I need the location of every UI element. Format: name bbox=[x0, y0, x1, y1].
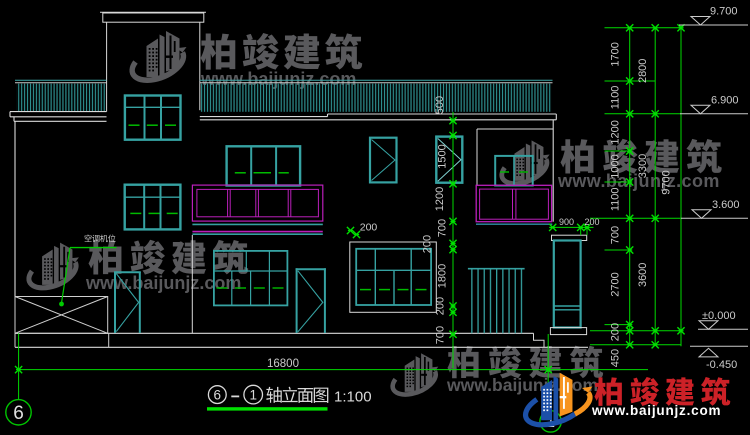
svg-text:1: 1 bbox=[249, 388, 257, 403]
svg-text:500: 500 bbox=[434, 96, 446, 114]
svg-text:6.900: 6.900 bbox=[711, 95, 739, 107]
svg-text:1800: 1800 bbox=[437, 264, 449, 288]
svg-text:900: 900 bbox=[559, 217, 574, 227]
svg-text:www.baijunjz.com: www.baijunjz.com bbox=[85, 273, 241, 293]
svg-text:200: 200 bbox=[584, 217, 599, 227]
svg-text:1700: 1700 bbox=[610, 42, 622, 66]
svg-text:450: 450 bbox=[610, 349, 622, 367]
svg-text:-0.450: -0.450 bbox=[706, 359, 737, 371]
svg-text:700: 700 bbox=[610, 226, 622, 244]
svg-text:700: 700 bbox=[435, 326, 447, 344]
svg-text:1:100: 1:100 bbox=[334, 389, 372, 406]
svg-text:200: 200 bbox=[610, 323, 622, 341]
svg-text:1100: 1100 bbox=[610, 187, 622, 211]
svg-text:2700: 2700 bbox=[610, 272, 622, 296]
svg-text:3300: 3300 bbox=[637, 154, 649, 178]
svg-text:6: 6 bbox=[13, 403, 24, 424]
svg-text:www.baijunjz.com: www.baijunjz.com bbox=[446, 375, 598, 395]
svg-text:1100: 1100 bbox=[610, 86, 622, 110]
svg-text:3.600: 3.600 bbox=[712, 199, 740, 211]
svg-text:±0.000: ±0.000 bbox=[702, 310, 736, 322]
svg-text:9700: 9700 bbox=[661, 170, 673, 194]
svg-text:3600: 3600 bbox=[637, 263, 649, 287]
svg-text:200: 200 bbox=[422, 235, 434, 253]
svg-text:1200: 1200 bbox=[434, 187, 446, 211]
svg-text:200: 200 bbox=[435, 297, 447, 315]
svg-text:16800: 16800 bbox=[267, 358, 299, 370]
svg-text:1000: 1000 bbox=[610, 154, 622, 178]
svg-text:2800: 2800 bbox=[637, 59, 649, 83]
svg-text:1500: 1500 bbox=[437, 144, 449, 168]
svg-text:700: 700 bbox=[437, 219, 449, 237]
svg-text:www.baijunjz.com: www.baijunjz.com bbox=[591, 403, 721, 418]
svg-text:1200: 1200 bbox=[610, 120, 622, 144]
svg-text:6: 6 bbox=[214, 388, 222, 403]
svg-text:9.700: 9.700 bbox=[710, 6, 738, 18]
svg-text:200: 200 bbox=[360, 222, 378, 234]
